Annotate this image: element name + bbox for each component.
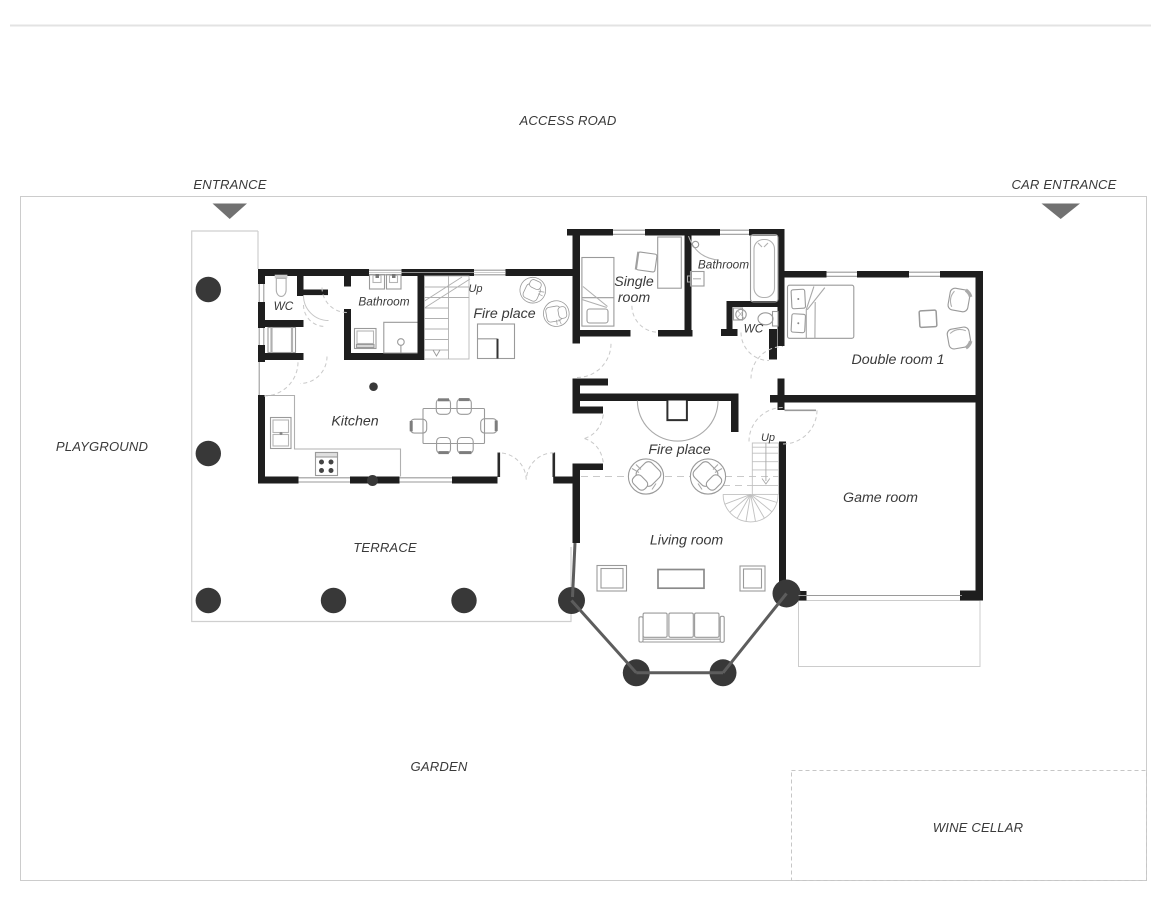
svg-text:TERRACE: TERRACE [353,540,417,555]
svg-text:WC: WC [274,299,294,313]
svg-text:Bathroom: Bathroom [358,295,409,309]
svg-text:WINE CELLAR: WINE CELLAR [933,820,1024,835]
svg-text:Bathroom: Bathroom [698,258,749,272]
svg-text:Double room 1: Double room 1 [851,352,944,368]
svg-text:Up: Up [761,432,775,444]
svg-text:Fire place: Fire place [473,306,535,322]
svg-text:ACCESS ROAD: ACCESS ROAD [519,113,617,128]
svg-text:Fire place: Fire place [648,442,710,458]
svg-text:Living room: Living room [650,533,724,549]
svg-text:Kitchen: Kitchen [331,414,378,430]
svg-text:PLAYGROUND: PLAYGROUND [56,439,149,454]
svg-text:room: room [618,290,651,306]
svg-text:GARDEN: GARDEN [411,759,468,774]
svg-text:Game room: Game room [843,490,918,506]
svg-text:Up: Up [468,283,482,295]
svg-text:CAR ENTRANCE: CAR ENTRANCE [1011,177,1116,192]
svg-text:WC: WC [744,322,764,336]
svg-text:ENTRANCE: ENTRANCE [193,177,266,192]
svg-text:Single: Single [614,274,654,290]
